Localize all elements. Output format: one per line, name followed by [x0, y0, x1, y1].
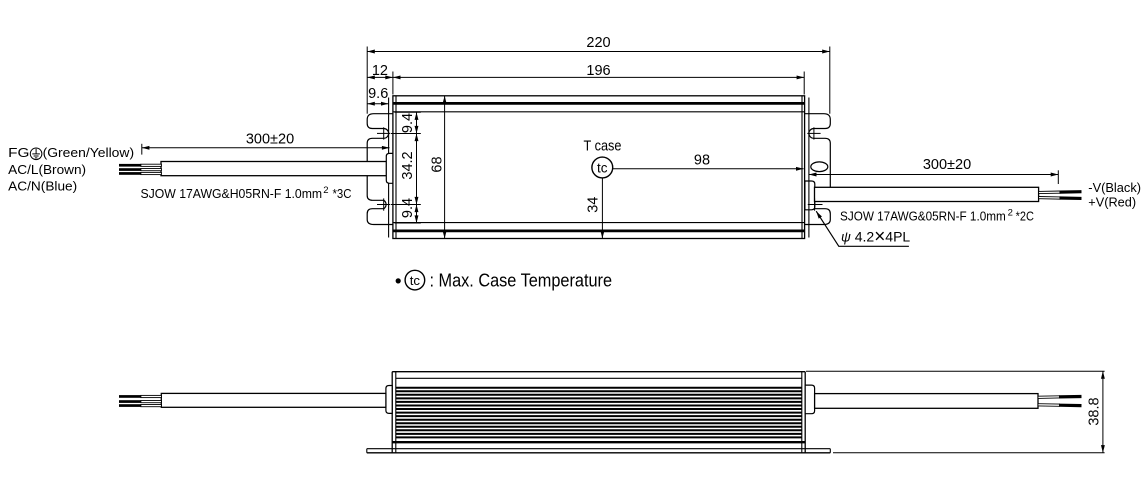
svg-text:: Max. Case Temperature: : Max. Case Temperature [430, 270, 613, 291]
svg-text:68: 68 [430, 156, 446, 172]
svg-text:*2C: *2C [1016, 209, 1035, 224]
svg-text:ψ 4.2×4PL: ψ 4.2×4PL [841, 227, 910, 248]
svg-text:AC/L(Brown): AC/L(Brown) [8, 162, 86, 177]
svg-text:(Green/Yellow): (Green/Yellow) [43, 145, 135, 160]
svg-text:T case: T case [584, 139, 622, 155]
svg-text:9.4: 9.4 [400, 113, 416, 133]
svg-text:tc: tc [410, 273, 421, 288]
svg-text:-V(Black): -V(Black) [1088, 180, 1141, 195]
svg-text:FG: FG [8, 145, 29, 160]
svg-text:2: 2 [1008, 208, 1013, 219]
svg-text:2: 2 [323, 185, 328, 196]
svg-text:SJOW 17AWG&H05RN-F 1.0mm: SJOW 17AWG&H05RN-F 1.0mm [141, 186, 323, 201]
svg-text:12: 12 [372, 63, 388, 79]
svg-text:34: 34 [585, 197, 601, 213]
svg-text:9.4: 9.4 [400, 198, 416, 218]
svg-text:220: 220 [586, 35, 610, 51]
svg-text:9.6: 9.6 [368, 86, 388, 102]
svg-text:SJOW 17AWG&05RN-F 1.0mm: SJOW 17AWG&05RN-F 1.0mm [840, 209, 1006, 224]
svg-text:98: 98 [694, 153, 710, 169]
svg-text:34.2: 34.2 [400, 151, 416, 179]
svg-text:+V(Red): +V(Red) [1088, 195, 1136, 210]
svg-text:38.8: 38.8 [1086, 397, 1102, 425]
svg-text:*3C: *3C [333, 186, 352, 201]
svg-text:AC/N(Blue): AC/N(Blue) [8, 178, 77, 193]
svg-text:tc: tc [597, 160, 608, 175]
svg-text:300±20: 300±20 [246, 132, 294, 148]
svg-text:196: 196 [586, 63, 610, 79]
svg-text:300±20: 300±20 [923, 157, 971, 173]
